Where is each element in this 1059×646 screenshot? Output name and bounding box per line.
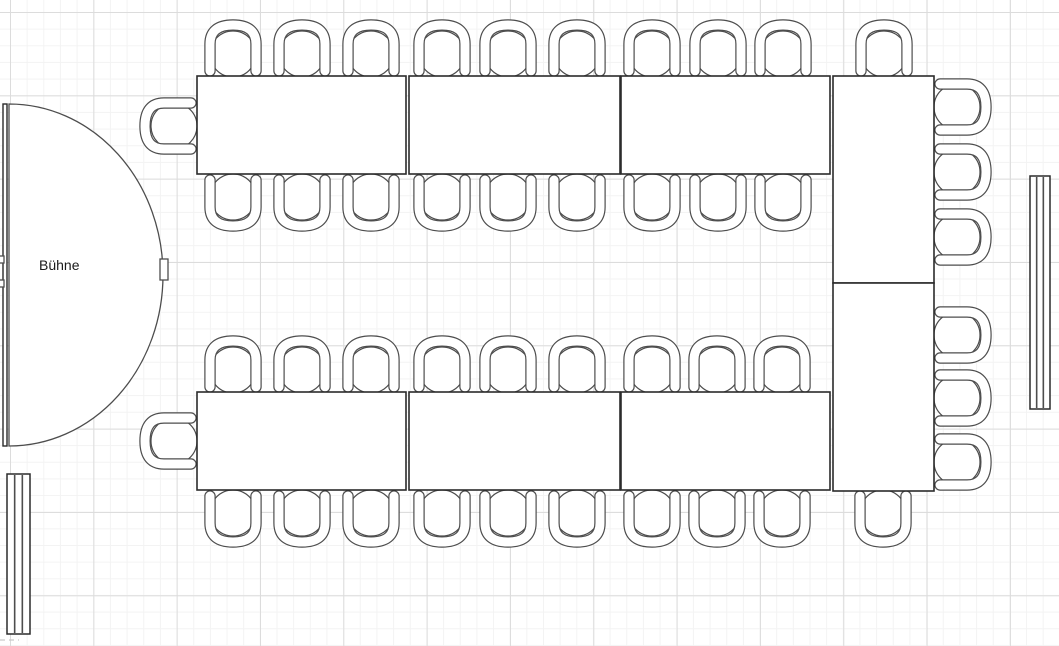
- chair-down[interactable]: [554, 25, 600, 77]
- stage-step: [160, 259, 168, 280]
- chair-down[interactable]: [861, 25, 907, 77]
- chair-down[interactable]: [629, 341, 675, 393]
- chair-down[interactable]: [695, 25, 741, 77]
- chair-up[interactable]: [210, 490, 256, 542]
- table[interactable]: [197, 76, 406, 174]
- chair-down[interactable]: [760, 25, 806, 77]
- table[interactable]: [409, 76, 620, 174]
- chair-down[interactable]: [279, 341, 325, 393]
- chair-left[interactable]: [934, 84, 986, 130]
- stage-connector-nub: [0, 280, 4, 287]
- chair-left[interactable]: [934, 149, 986, 195]
- chair-up[interactable]: [279, 174, 325, 226]
- chair-right[interactable]: [145, 103, 197, 149]
- wall-segment[interactable]: [1030, 176, 1050, 409]
- chair-down[interactable]: [554, 341, 600, 393]
- chair-down[interactable]: [348, 25, 394, 77]
- table[interactable]: [197, 392, 406, 490]
- chair-down[interactable]: [485, 341, 531, 393]
- chair-up[interactable]: [348, 174, 394, 226]
- chair-down[interactable]: [629, 25, 675, 77]
- chair-right[interactable]: [145, 418, 197, 464]
- stage-arc: [9, 104, 163, 446]
- chair-up[interactable]: [348, 490, 394, 542]
- table[interactable]: [621, 76, 830, 174]
- table[interactable]: [833, 283, 934, 491]
- chair-down[interactable]: [694, 341, 740, 393]
- chair-up[interactable]: [419, 490, 465, 542]
- chair-up[interactable]: [760, 174, 806, 226]
- chair-down[interactable]: [419, 341, 465, 393]
- wall-segment[interactable]: [7, 474, 30, 634]
- table[interactable]: [833, 76, 934, 283]
- stage-back-band: [3, 104, 7, 446]
- chair-up[interactable]: [695, 174, 741, 226]
- chair-down[interactable]: [210, 341, 256, 393]
- stage-label: Bühne: [39, 258, 79, 273]
- chair-left[interactable]: [934, 214, 986, 260]
- chair-up[interactable]: [419, 174, 465, 226]
- chair-up[interactable]: [629, 490, 675, 542]
- chair-up[interactable]: [629, 174, 675, 226]
- chair-left[interactable]: [934, 375, 986, 421]
- table[interactable]: [409, 392, 620, 490]
- tables-layer: [197, 76, 934, 491]
- chair-up[interactable]: [860, 490, 906, 542]
- stage-connector-nub: [0, 256, 4, 263]
- diagram-canvas[interactable]: Bühne: [0, 0, 1059, 646]
- chair-left[interactable]: [934, 439, 986, 485]
- chair-down[interactable]: [348, 341, 394, 393]
- chair-up[interactable]: [485, 174, 531, 226]
- chair-up[interactable]: [694, 490, 740, 542]
- chair-up[interactable]: [485, 490, 531, 542]
- table[interactable]: [621, 392, 830, 490]
- chair-up[interactable]: [210, 174, 256, 226]
- chair-down[interactable]: [485, 25, 531, 77]
- chair-up[interactable]: [554, 174, 600, 226]
- chair-down[interactable]: [759, 341, 805, 393]
- chair-up[interactable]: [554, 490, 600, 542]
- chair-down[interactable]: [210, 25, 256, 77]
- wall-outline: [7, 474, 30, 634]
- floorplan-svg: [0, 0, 1059, 646]
- chair-down[interactable]: [419, 25, 465, 77]
- wall-outline: [1030, 176, 1050, 409]
- chair-left[interactable]: [934, 312, 986, 358]
- chair-up[interactable]: [759, 490, 805, 542]
- stage-shape[interactable]: [0, 104, 168, 446]
- chair-up[interactable]: [279, 490, 325, 542]
- chair-down[interactable]: [279, 25, 325, 77]
